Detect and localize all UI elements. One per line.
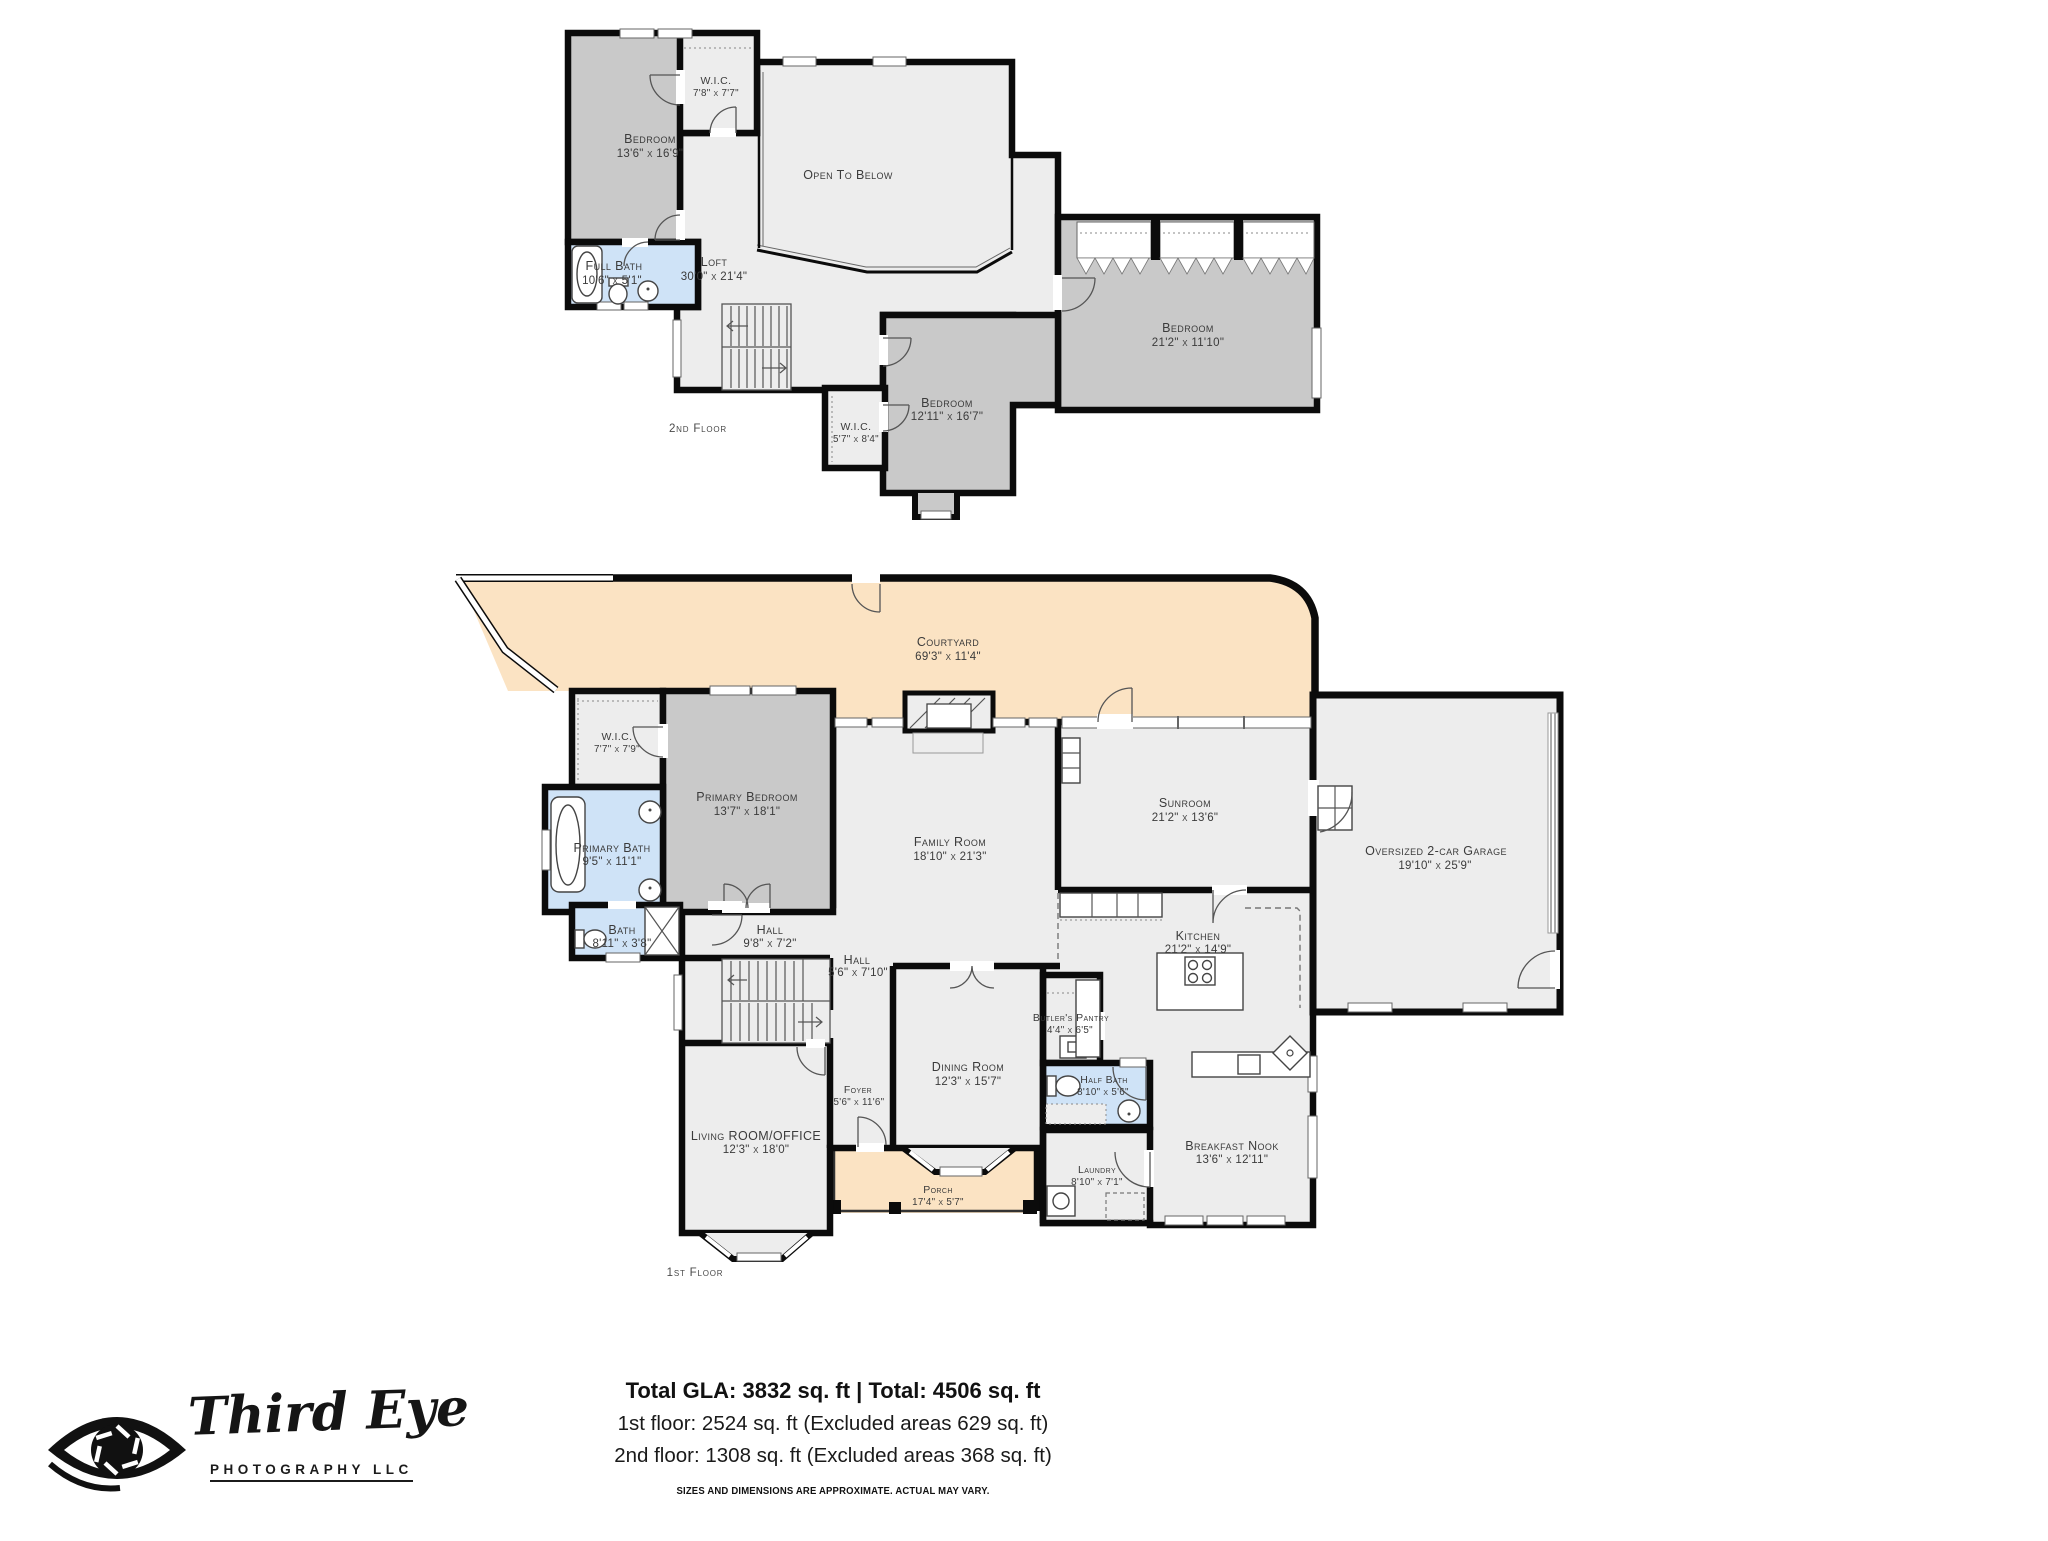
label-primary-bedroom: Primary Bedroom bbox=[696, 790, 798, 804]
label-courtyard-dims: 69'3" x 11'4" bbox=[915, 651, 981, 663]
label-hall2-dims: 5'6" x 7'10" bbox=[828, 967, 888, 979]
summary-first-floor: 1st floor: 2524 sq. ft (Excluded areas 6… bbox=[333, 1412, 1333, 1436]
stairs-2f bbox=[722, 304, 791, 390]
label-wic-bottom-dims: 5'7" x 8'4" bbox=[833, 434, 879, 445]
label-living-room: Living ROOM/OFFICE bbox=[691, 1129, 821, 1143]
label-bedroom-bottom: Bedroom bbox=[921, 396, 973, 410]
label-sunroom: Sunroom bbox=[1159, 796, 1211, 810]
garage-door bbox=[1548, 713, 1558, 933]
label-loft: Loft bbox=[701, 255, 728, 269]
label-half-bath: Half Bath bbox=[1080, 1074, 1127, 1086]
label-half-bath-dims: 8'10" x 5'6" bbox=[1077, 1087, 1129, 1098]
label-wic1: W.I.C. bbox=[602, 731, 633, 743]
garage-door-closet bbox=[1318, 786, 1352, 832]
stove-icon bbox=[1185, 957, 1215, 985]
label-primary-bath-dims: 9'5" x 11'1" bbox=[582, 856, 641, 868]
label-living-room-dims: 12'3" x 18'0" bbox=[723, 1144, 790, 1156]
label-bath-dims: 8'11" x 3'8" bbox=[592, 938, 651, 950]
label-hall: Hall bbox=[757, 923, 784, 937]
label-wic-bottom: W.I.C. bbox=[841, 421, 872, 433]
label-wic-top-dims: 7'8" x 7'7" bbox=[693, 88, 739, 99]
floor1-plan: Courtyard 69'3" x 11'4" W.I.C. 7'7" x 7'… bbox=[456, 574, 1560, 1279]
kitchen-island bbox=[1157, 953, 1243, 1010]
label-porch: Porch bbox=[923, 1184, 953, 1196]
label-bedroom-tl-dims: 13'6" x 16'9" bbox=[617, 148, 684, 160]
floor1-label: 1st Floor bbox=[667, 1267, 724, 1279]
label-courtyard: Courtyard bbox=[917, 635, 979, 649]
label-breakfast-nook: Breakfast Nook bbox=[1185, 1139, 1278, 1153]
label-butlers-pantry: Butler's Pantry bbox=[1033, 1012, 1109, 1024]
label-bedroom-bottom-dims: 12'11" x 16'7" bbox=[911, 411, 983, 423]
sunroom-closet bbox=[1062, 738, 1080, 783]
photographer-logo: Third Eye PHOTOGRAPHY LLC bbox=[42, 1392, 472, 1517]
label-wic1-dims: 7'7" x 7'9" bbox=[594, 744, 640, 755]
label-wic-top: W.I.C. bbox=[701, 75, 732, 87]
label-bedroom-right: Bedroom bbox=[1162, 321, 1214, 335]
label-hall-dims: 9'8" x 7'2" bbox=[743, 938, 796, 950]
third-eye-logo-icon bbox=[42, 1398, 192, 1498]
label-kitchen: Kitchen bbox=[1176, 929, 1221, 943]
label-garage: Oversized 2-car Garage bbox=[1365, 844, 1507, 858]
label-laundry: Laundry bbox=[1078, 1164, 1116, 1176]
label-bedroom-right-dims: 21'2" x 11'10" bbox=[1152, 337, 1224, 349]
label-kitchen-dims: 21'2" x 14'9" bbox=[1165, 944, 1232, 956]
label-dining-room: Dining Room bbox=[932, 1060, 1004, 1074]
label-loft-dims: 30'0" x 21'4" bbox=[681, 271, 748, 283]
summary-block: Total GLA: 3832 sq. ft | Total: 4506 sq.… bbox=[333, 1378, 1333, 1476]
label-family-room: Family Room bbox=[914, 835, 986, 849]
logo-name: Third Eye bbox=[187, 1377, 470, 1448]
label-butlers-pantry-dims: 4'4" x 6'5" bbox=[1047, 1025, 1093, 1036]
label-breakfast-nook-dims: 13'6" x 12'11" bbox=[1196, 1154, 1268, 1166]
floor2-plan: Bedroom 13'6" x 16'9" W.I.C. 7'8" x 7'7"… bbox=[568, 29, 1321, 519]
summary-total: Total GLA: 3832 sq. ft | Total: 4506 sq.… bbox=[333, 1378, 1333, 1404]
label-dining-room-dims: 12'3" x 15'7" bbox=[935, 1076, 1002, 1088]
label-bedroom-tl: Bedroom bbox=[624, 132, 676, 146]
label-open-to-below: Open To Below bbox=[803, 168, 893, 182]
label-primary-bath: Primary Bath bbox=[573, 841, 650, 855]
label-foyer-dims: 5'6" x 11'6" bbox=[834, 1097, 885, 1108]
label-bath: Bath bbox=[608, 923, 635, 937]
summary-disclaimer: SIZES AND DIMENSIONS ARE APPROXIMATE. AC… bbox=[358, 1486, 1308, 1497]
label-sunroom-dims: 21'2" x 13'6" bbox=[1152, 812, 1219, 824]
stairs-1f bbox=[722, 959, 830, 1043]
floorplan-canvas: Bedroom 13'6" x 16'9" W.I.C. 7'8" x 7'7"… bbox=[0, 0, 2048, 1536]
label-primary-bedroom-dims: 13'7" x 18'1" bbox=[714, 806, 781, 818]
summary-second-floor: 2nd floor: 1308 sq. ft (Excluded areas 3… bbox=[333, 1444, 1333, 1468]
label-full-bath: Full Bath bbox=[586, 259, 643, 273]
label-porch-dims: 17'4" x 5'7" bbox=[912, 1197, 964, 1208]
logo-tagline: PHOTOGRAPHY LLC bbox=[210, 1462, 413, 1482]
label-family-room-dims: 18'10" x 21'3" bbox=[913, 851, 986, 863]
label-laundry-dims: 8'10" x 7'1" bbox=[1071, 1177, 1123, 1188]
label-full-bath-dims: 10'6" x 5'1" bbox=[582, 275, 642, 287]
label-hall2: Hall bbox=[844, 953, 871, 967]
floorplan-svg: Bedroom 13'6" x 16'9" W.I.C. 7'8" x 7'7"… bbox=[0, 0, 2048, 1536]
label-foyer: Foyer bbox=[844, 1084, 872, 1096]
label-garage-dims: 19'10" x 25'9" bbox=[1398, 860, 1471, 872]
floor2-label: 2nd Floor bbox=[669, 423, 727, 435]
